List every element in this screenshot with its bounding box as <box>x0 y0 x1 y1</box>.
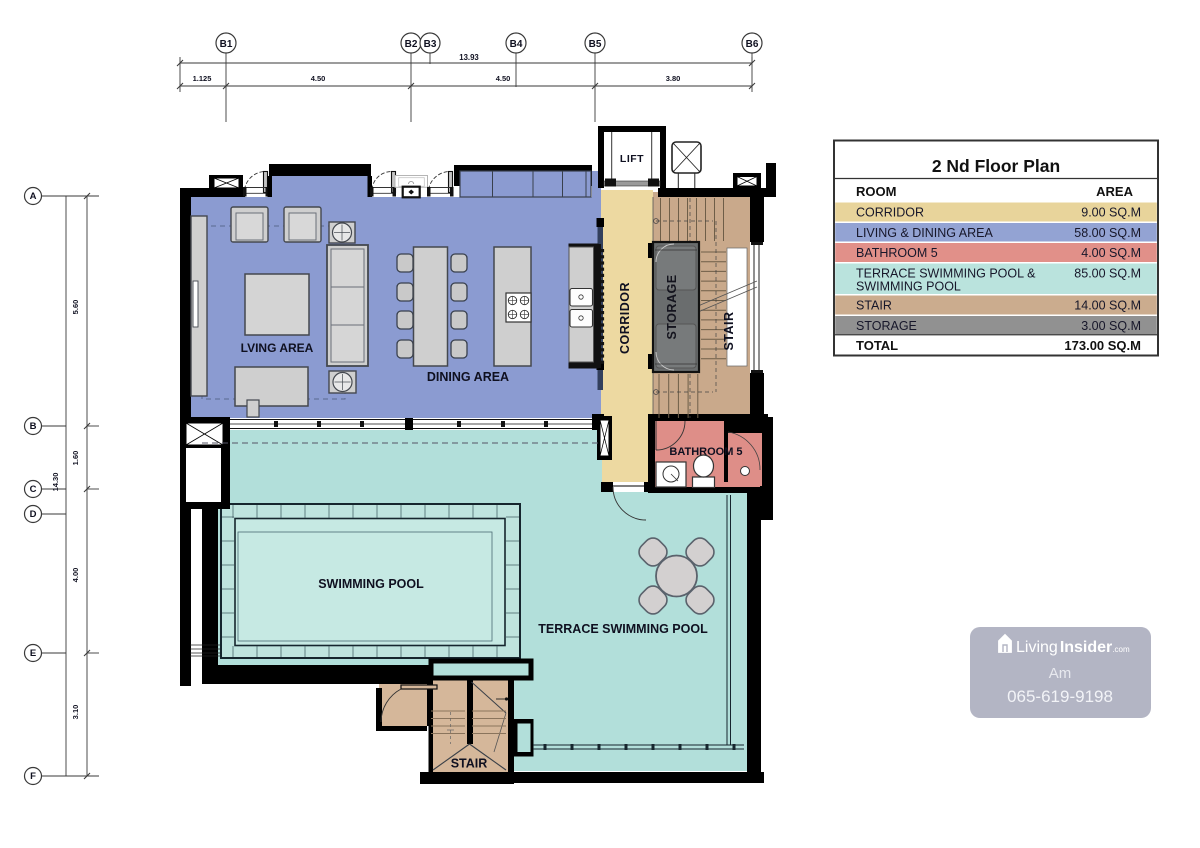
svg-text:D: D <box>30 509 37 520</box>
svg-text:173.00 SQ.M: 173.00 SQ.M <box>1064 338 1141 353</box>
svg-text:LVING AREA: LVING AREA <box>241 341 314 355</box>
svg-text:STAIR: STAIR <box>451 757 488 771</box>
svg-text:TOTAL: TOTAL <box>856 338 898 353</box>
svg-text:A: A <box>30 191 37 202</box>
svg-text:4.50: 4.50 <box>311 74 326 83</box>
svg-text:STORAGE: STORAGE <box>665 274 679 339</box>
svg-text:SWIMMING POOL: SWIMMING POOL <box>856 280 961 294</box>
svg-text:B5: B5 <box>589 39 602 50</box>
svg-text:4.00: 4.00 <box>71 568 80 583</box>
svg-text:LIFT: LIFT <box>620 153 644 165</box>
svg-text:4.00 SQ.M: 4.00 SQ.M <box>1081 246 1141 260</box>
svg-text:TERRACE SWIMMING POOL &: TERRACE SWIMMING POOL & <box>856 267 1036 281</box>
svg-text:CORRIDOR: CORRIDOR <box>856 206 924 220</box>
svg-text:DINING AREA: DINING AREA <box>427 370 509 384</box>
svg-text:ROOM: ROOM <box>856 184 896 199</box>
svg-text:LIVING & DINING AREA: LIVING & DINING AREA <box>856 226 994 240</box>
svg-text:2 Nd Floor Plan: 2 Nd Floor Plan <box>932 156 1060 176</box>
svg-text:F: F <box>30 771 36 782</box>
svg-text:B6: B6 <box>746 39 759 50</box>
svg-text:14.00 SQ.M: 14.00 SQ.M <box>1074 299 1141 313</box>
svg-text:STAIR: STAIR <box>856 299 892 313</box>
svg-text:1.125: 1.125 <box>193 74 212 83</box>
svg-text:4.50: 4.50 <box>496 74 511 83</box>
svg-text:CORRIDOR: CORRIDOR <box>618 282 632 354</box>
svg-text:E: E <box>30 648 36 659</box>
svg-text:3.80: 3.80 <box>666 74 681 83</box>
svg-text:1.60: 1.60 <box>71 451 80 466</box>
svg-text:STAIR: STAIR <box>722 311 736 350</box>
svg-text:STORAGE: STORAGE <box>856 319 917 333</box>
svg-text:B4: B4 <box>510 39 523 50</box>
svg-text:B2: B2 <box>405 39 418 50</box>
svg-text:065-619-9198: 065-619-9198 <box>1007 687 1113 706</box>
svg-text:5.60: 5.60 <box>71 300 80 315</box>
svg-text:3.00 SQ.M: 3.00 SQ.M <box>1081 319 1141 333</box>
svg-text:SWIMMING POOL: SWIMMING POOL <box>318 577 424 591</box>
svg-text:B1: B1 <box>220 39 233 50</box>
svg-text:AREA: AREA <box>1096 184 1133 199</box>
svg-text:TERRACE SWIMMING POOL: TERRACE SWIMMING POOL <box>538 622 708 636</box>
svg-text:13.93: 13.93 <box>459 53 479 62</box>
svg-text:3.10: 3.10 <box>71 705 80 720</box>
svg-text:C: C <box>30 484 37 495</box>
svg-text:Am: Am <box>1049 665 1072 682</box>
svg-text:B: B <box>30 421 37 432</box>
svg-text:9.00 SQ.M: 9.00 SQ.M <box>1081 206 1141 220</box>
svg-text:BATHROOM 5: BATHROOM 5 <box>856 246 938 260</box>
svg-text:58.00 SQ.M: 58.00 SQ.M <box>1074 226 1141 240</box>
svg-text:14.30: 14.30 <box>51 473 60 492</box>
svg-text:B3: B3 <box>424 39 437 50</box>
svg-text:85.00 SQ.M: 85.00 SQ.M <box>1074 267 1141 281</box>
